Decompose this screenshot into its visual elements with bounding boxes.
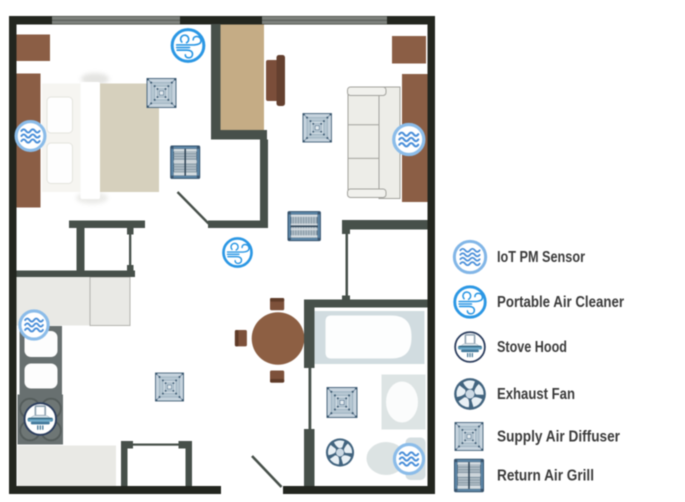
svg-text:Stove Hood: Stove Hood [497, 339, 567, 356]
svg-text:Supply Air Diffuser: Supply Air Diffuser [497, 429, 620, 446]
svg-text:Return Air Grill: Return Air Grill [497, 468, 594, 485]
svg-text:Exhaust Fan: Exhaust Fan [497, 386, 575, 403]
svg-text:Portable Air Cleaner: Portable Air Cleaner [497, 294, 624, 311]
svg-text:IoT PM Sensor: IoT PM Sensor [497, 249, 585, 266]
